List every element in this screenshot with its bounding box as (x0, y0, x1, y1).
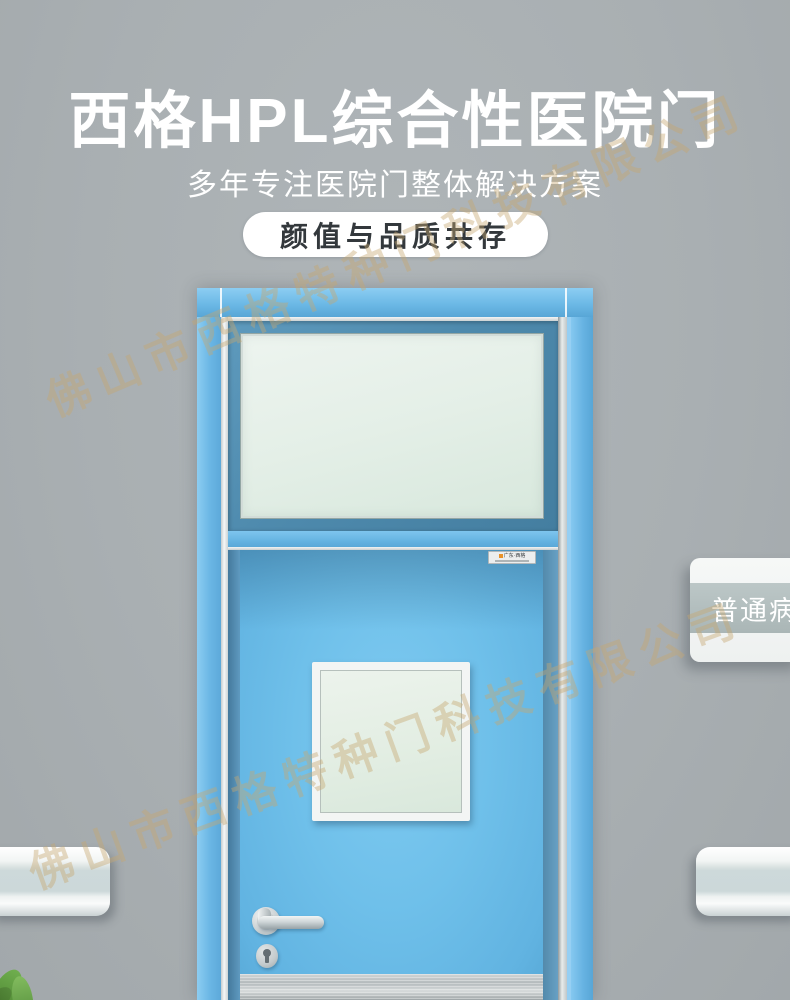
transom-window (228, 321, 558, 531)
door-jamb-right (543, 550, 558, 1000)
brand-plate: 广东·西格 (488, 551, 536, 564)
brand-plate-subline (495, 560, 529, 562)
door-vision-glass (320, 670, 462, 813)
promo-banner: 西格HPL综合性医院门 多年专注医院门整体解决方案 颜值与品质共存 佛山市西格特… (0, 0, 790, 1000)
door-jamb-left (228, 550, 240, 1000)
kick-plate (240, 974, 543, 1000)
wall-handrail-right (696, 847, 790, 916)
transom-rail (228, 531, 558, 547)
frame-trim-right (558, 288, 567, 1000)
frame-stile-left (197, 288, 221, 1000)
frame-trim-left (221, 288, 228, 1000)
page-subtitle: 多年专注医院门整体解决方案 (0, 160, 790, 204)
transom-glass (243, 336, 541, 516)
room-sign: 普通病房 (690, 558, 790, 662)
room-sign-label: 普通病房 (690, 589, 790, 628)
brand-logo-icon (499, 554, 503, 558)
room-sign-band: 普通病房 (690, 583, 790, 633)
page-title: 西格HPL综合性医院门 (0, 70, 790, 160)
frame-lintel (197, 288, 593, 317)
frame-stile-right (571, 288, 593, 1000)
wall-handrail-left (0, 847, 110, 916)
keyhole-icon (265, 955, 269, 963)
quality-badge: 颜值与品质共存 (243, 212, 548, 257)
frame-miter-joint (565, 288, 567, 317)
door-handle-lever (258, 916, 324, 929)
door-vision-window (312, 662, 470, 821)
door-lock (256, 944, 278, 968)
brand-plate-label: 广东·西格 (504, 554, 526, 559)
door-leaf: 广东·西格 (240, 550, 543, 1000)
frame-miter-joint (220, 288, 222, 317)
brand-row: 广东·西格 (499, 554, 526, 559)
hospital-door: 广东·西格 (197, 288, 593, 1000)
